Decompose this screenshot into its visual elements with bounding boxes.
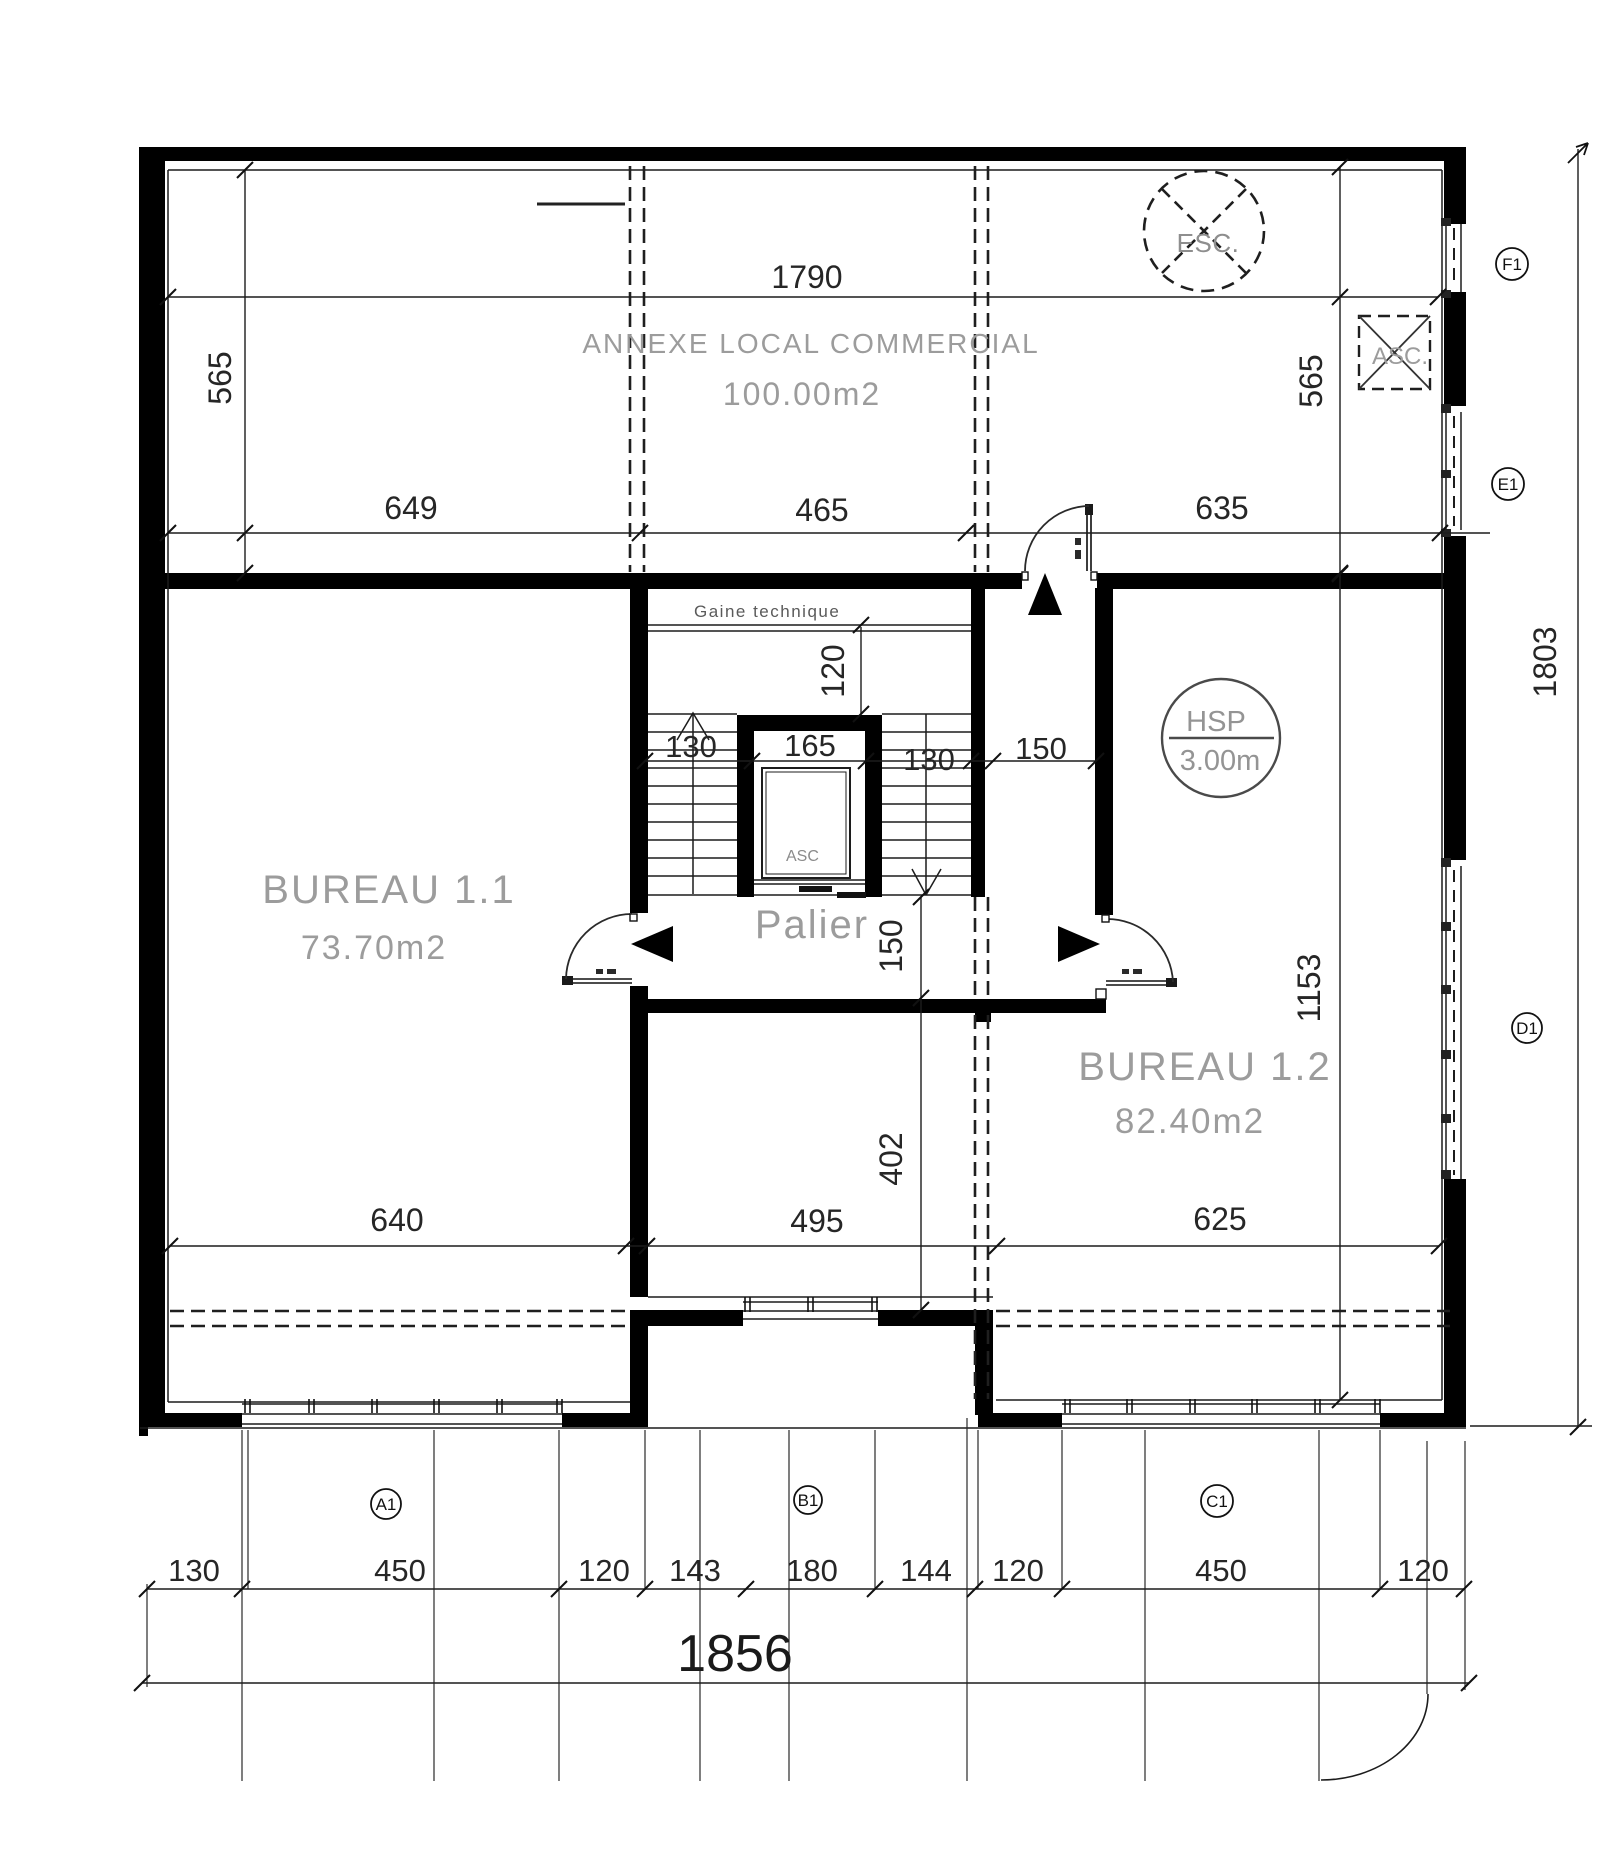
svg-text:625: 625 <box>1193 1201 1246 1237</box>
svg-text:BUREAU 1.1: BUREAU 1.1 <box>262 868 515 912</box>
svg-text:450: 450 <box>1195 1553 1247 1588</box>
svg-text:649: 649 <box>384 490 437 526</box>
svg-text:Gaine technique: Gaine technique <box>694 602 840 621</box>
svg-text:495: 495 <box>790 1203 843 1239</box>
svg-text:143: 143 <box>669 1553 721 1588</box>
svg-text:Palier: Palier <box>755 903 869 947</box>
svg-text:ASC.: ASC. <box>1372 343 1428 370</box>
svg-text:565: 565 <box>202 351 238 404</box>
svg-text:E1: E1 <box>1498 475 1519 494</box>
svg-text:73.70m2: 73.70m2 <box>301 929 447 967</box>
svg-text:120: 120 <box>1397 1553 1449 1588</box>
svg-text:B1: B1 <box>798 1491 819 1510</box>
svg-text:C1: C1 <box>1206 1492 1228 1511</box>
svg-text:1856: 1856 <box>677 1625 793 1683</box>
svg-text:130: 130 <box>903 742 955 777</box>
svg-text:ASC: ASC <box>786 848 819 865</box>
svg-text:1153: 1153 <box>1291 954 1327 1023</box>
svg-text:465: 465 <box>795 492 848 528</box>
svg-text:100.00m2: 100.00m2 <box>723 376 881 412</box>
svg-text:A1: A1 <box>376 1495 397 1514</box>
svg-text:402: 402 <box>873 1132 909 1185</box>
svg-text:120: 120 <box>578 1553 630 1588</box>
svg-text:150: 150 <box>873 919 909 972</box>
svg-text:130: 130 <box>665 729 717 764</box>
svg-text:565: 565 <box>1293 354 1329 407</box>
svg-text:HSP: HSP <box>1186 706 1246 738</box>
svg-text:144: 144 <box>900 1553 952 1588</box>
svg-text:1803: 1803 <box>1527 626 1563 697</box>
svg-text:D1: D1 <box>1516 1019 1538 1038</box>
svg-text:1790: 1790 <box>771 259 842 295</box>
svg-text:120: 120 <box>992 1553 1044 1588</box>
svg-text:640: 640 <box>370 1202 423 1238</box>
svg-text:635: 635 <box>1195 490 1248 526</box>
svg-text:BUREAU 1.2: BUREAU 1.2 <box>1078 1045 1331 1089</box>
svg-text:165: 165 <box>784 728 836 763</box>
svg-text:180: 180 <box>786 1553 838 1588</box>
svg-text:3.00m: 3.00m <box>1180 745 1261 777</box>
svg-text:150: 150 <box>1015 731 1067 766</box>
svg-text:ESC.: ESC. <box>1177 228 1240 258</box>
svg-text:120: 120 <box>815 644 851 697</box>
svg-text:82.40m2: 82.40m2 <box>1115 1102 1265 1141</box>
svg-text:F1: F1 <box>1502 255 1522 274</box>
svg-text:ANNEXE LOCAL COMMERCIAL: ANNEXE LOCAL COMMERCIAL <box>582 328 1039 359</box>
svg-text:450: 450 <box>374 1553 426 1588</box>
svg-text:130: 130 <box>168 1553 220 1588</box>
